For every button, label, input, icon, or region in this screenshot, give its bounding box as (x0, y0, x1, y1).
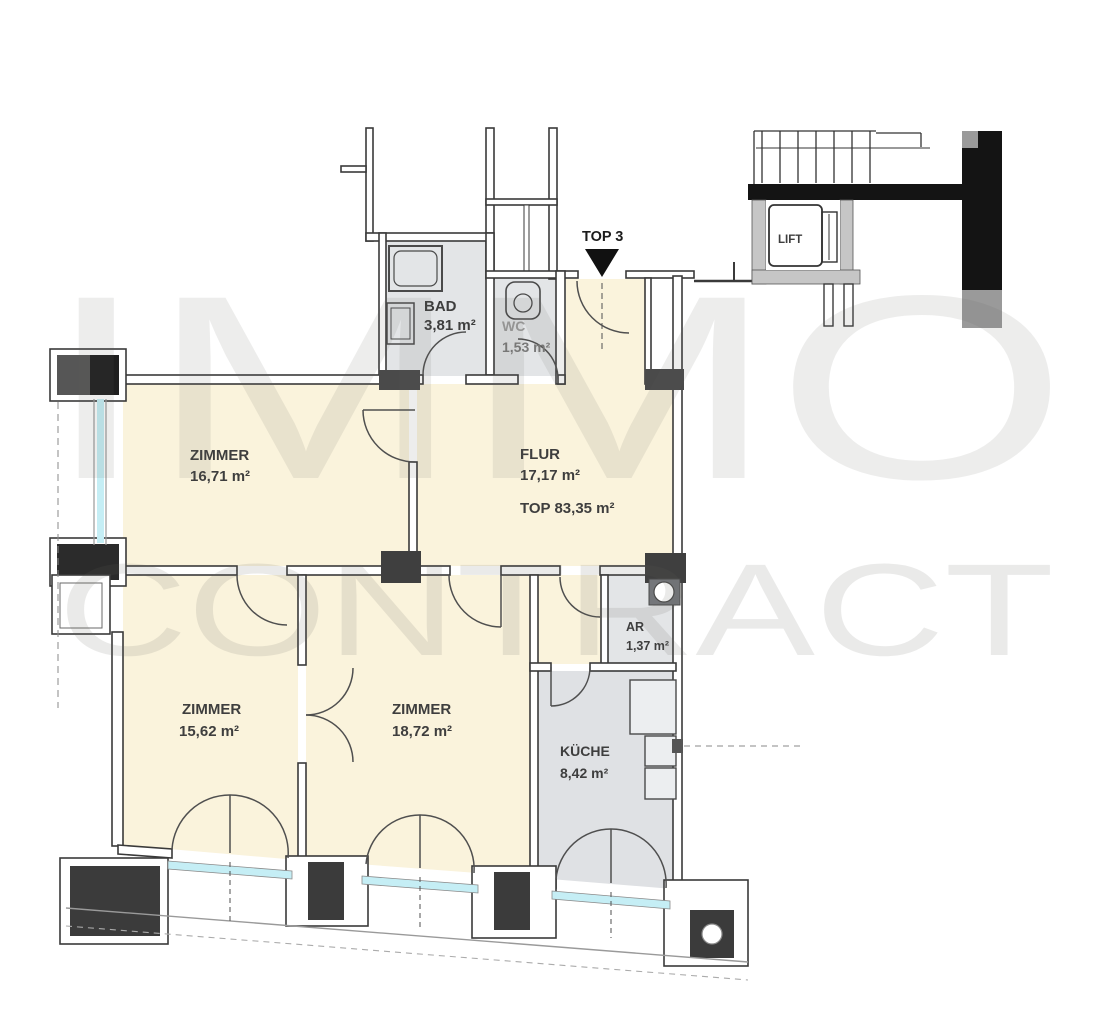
label-zimmer-2-area: 15,62 m² (179, 723, 239, 740)
label-zimmer-2-name: ZIMMER (182, 701, 241, 718)
watermark: IMMO CONTRACT (44, 241, 1068, 683)
kitchen-counter-icon (630, 680, 676, 734)
watermark-line-2: CONTRACT (58, 536, 1054, 683)
floor-plan-image: TOP 3 BAD 3,81 m² WC 1,53 m² ZIMMER 16,7… (0, 0, 1112, 1024)
watermark-line-1: IMMO (44, 241, 1068, 534)
staircase (754, 131, 930, 184)
label-zimmer-3-area: 18,72 m² (392, 723, 452, 740)
label-zimmer-3-name: ZIMMER (392, 701, 451, 718)
label-kueche-name: KÜCHE (560, 743, 610, 759)
floorplan-page: TOP 3 BAD 3,81 m² WC 1,53 m² ZIMMER 16,7… (0, 0, 1112, 1024)
label-kueche-area: 8,42 m² (560, 765, 609, 781)
solid-wall-stairs (748, 184, 965, 200)
